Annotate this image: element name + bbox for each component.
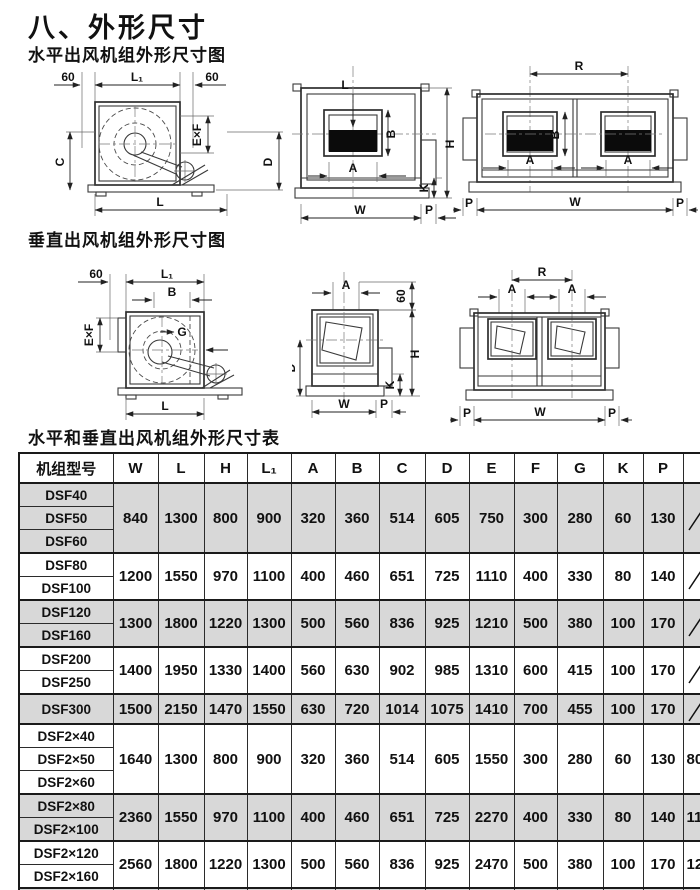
value-cell: 1220: [204, 600, 247, 647]
value-cell: 800: [683, 724, 700, 794]
value-cell: 836: [379, 600, 425, 647]
value-cell: 1220: [204, 841, 247, 888]
horizontal-double-view-diagram: R B A A W P P: [452, 58, 700, 224]
value-cell: 1300: [247, 600, 291, 647]
value-cell: 2360: [113, 794, 158, 841]
table-header-row: 机组型号WLHL₁ABCDEFGKPR: [19, 453, 700, 483]
value-cell: 280: [557, 483, 603, 553]
dim-label-h: H: [408, 350, 422, 359]
dim-label-60: 60: [89, 267, 103, 281]
value-cell: 2150: [158, 694, 204, 724]
dim-label-a-left: A: [508, 282, 517, 296]
dim-label-d: D: [261, 157, 275, 166]
value-cell: 460: [335, 553, 379, 600]
value-cell: 900: [247, 483, 291, 553]
value-cell: [683, 553, 700, 600]
value-cell: 360: [335, 724, 379, 794]
horizontal-front-view-diagram: L B A H K W P: [284, 58, 470, 232]
value-cell: 500: [514, 600, 557, 647]
value-cell: 1260: [683, 841, 700, 888]
value-cell: 500: [291, 841, 335, 888]
value-cell: 140: [643, 553, 683, 600]
table-row: DSF2×80236015509701100400460651725227040…: [19, 794, 700, 818]
table-row: DSF2×40164013008009003203605146051550300…: [19, 724, 700, 748]
value-cell: 380: [557, 841, 603, 888]
value-cell: 1300: [247, 841, 291, 888]
value-cell: 170: [643, 841, 683, 888]
value-cell: 1800: [158, 841, 204, 888]
table-row: DSF3001500215014701550630720101410751410…: [19, 694, 700, 724]
value-cell: 560: [291, 647, 335, 694]
value-cell: 1330: [204, 647, 247, 694]
column-header: K: [603, 453, 643, 483]
table-row: DSF1201300180012201300500560836925121050…: [19, 600, 700, 624]
value-cell: 1100: [247, 553, 291, 600]
value-cell: 1550: [469, 724, 514, 794]
value-cell: 925: [425, 600, 469, 647]
model-cell: DSF2×80: [19, 794, 113, 818]
value-cell: 300: [514, 724, 557, 794]
value-cell: 140: [643, 794, 683, 841]
dim-label-b: B: [548, 130, 562, 139]
dim-label-l1: L₁: [161, 267, 173, 281]
value-cell: 900: [247, 724, 291, 794]
value-cell: 500: [514, 841, 557, 888]
column-header: P: [643, 453, 683, 483]
dim-label-60-left: 60: [61, 70, 75, 84]
column-header: D: [425, 453, 469, 483]
value-cell: 836: [379, 841, 425, 888]
value-cell: 1500: [113, 694, 158, 724]
slash-mark: [687, 610, 700, 638]
value-cell: 170: [643, 600, 683, 647]
value-cell: 170: [643, 694, 683, 724]
value-cell: 460: [335, 794, 379, 841]
value-cell: 1550: [247, 694, 291, 724]
dim-label-d: D: [292, 363, 298, 372]
value-cell: 320: [291, 483, 335, 553]
column-header: 机组型号: [19, 453, 113, 483]
value-cell: 560: [335, 600, 379, 647]
value-cell: 1550: [158, 553, 204, 600]
slash-mark: [687, 657, 700, 685]
dim-label-w: W: [338, 397, 350, 411]
column-header: W: [113, 453, 158, 483]
value-cell: 400: [514, 794, 557, 841]
model-cell: DSF2×120: [19, 841, 113, 865]
value-cell: 605: [425, 724, 469, 794]
dim-label-a-right: A: [568, 282, 577, 296]
model-cell: DSF200: [19, 647, 113, 671]
value-cell: 1100: [247, 794, 291, 841]
dim-label-a: A: [342, 278, 351, 292]
model-cell: DSF160: [19, 624, 113, 648]
dim-label-k: K: [383, 380, 397, 389]
model-cell: DSF40: [19, 483, 113, 507]
value-cell: 100: [603, 841, 643, 888]
value-cell: 320: [291, 724, 335, 794]
value-cell: 651: [379, 794, 425, 841]
model-cell: DSF120: [19, 600, 113, 624]
value-cell: 720: [335, 694, 379, 724]
model-cell: DSF250: [19, 671, 113, 695]
model-cell: DSF50: [19, 507, 113, 530]
model-cell: DSF2×100: [19, 818, 113, 842]
value-cell: 1950: [158, 647, 204, 694]
value-cell: 400: [514, 553, 557, 600]
column-header: H: [204, 453, 247, 483]
dim-label-p: P: [425, 203, 433, 217]
value-cell: 750: [469, 483, 514, 553]
slash-mark: [687, 695, 700, 723]
dimensions-table: 机组型号WLHL₁ABCDEFGKPR DSF40840130080090032…: [18, 452, 700, 890]
dim-label-a-left: A: [526, 153, 535, 167]
dim-label-w: W: [354, 203, 366, 217]
dim-label-l: L: [156, 195, 163, 209]
value-cell: 1800: [158, 600, 204, 647]
value-cell: 1110: [469, 553, 514, 600]
value-cell: 800: [204, 483, 247, 553]
table-row: DSF2×12025601800122013005005608369252470…: [19, 841, 700, 865]
value-cell: 1014: [379, 694, 425, 724]
value-cell: 1200: [113, 553, 158, 600]
dim-label-exf: E×F: [82, 324, 96, 346]
dim-label-a: A: [349, 161, 358, 175]
dim-label-l-top: L: [341, 78, 348, 92]
value-cell: 970: [204, 553, 247, 600]
value-cell: 330: [557, 794, 603, 841]
column-header: A: [291, 453, 335, 483]
value-cell: 514: [379, 724, 425, 794]
dim-label-r: R: [538, 265, 547, 279]
dim-label-p-right: P: [608, 406, 616, 420]
value-cell: 700: [514, 694, 557, 724]
value-cell: 630: [335, 647, 379, 694]
value-cell: 925: [425, 841, 469, 888]
value-cell: 400: [291, 553, 335, 600]
value-cell: 514: [379, 483, 425, 553]
slash-mark: [687, 563, 700, 591]
dim-label-p-left: P: [465, 196, 473, 210]
dim-label-60-right: 60: [205, 70, 219, 84]
value-cell: 1410: [469, 694, 514, 724]
value-cell: 1300: [158, 483, 204, 553]
value-cell: 2270: [469, 794, 514, 841]
value-cell: 100: [603, 694, 643, 724]
value-cell: 1550: [158, 794, 204, 841]
dimensions-table-wrapper: 机组型号WLHL₁ABCDEFGKPR DSF40840130080090032…: [18, 452, 700, 890]
column-header: L: [158, 453, 204, 483]
value-cell: 1300: [158, 724, 204, 794]
value-cell: 300: [514, 483, 557, 553]
column-header: E: [469, 453, 514, 483]
value-cell: 1400: [247, 647, 291, 694]
dim-label-w: W: [534, 405, 546, 419]
dim-label-c: C: [53, 157, 67, 166]
value-cell: 1400: [113, 647, 158, 694]
dim-label-b: B: [168, 285, 177, 299]
value-cell: 360: [335, 483, 379, 553]
dim-label-g: G: [177, 325, 186, 339]
vertical-side-view-diagram: 60 L₁ B E×F G L: [22, 254, 290, 432]
value-cell: 280: [557, 724, 603, 794]
dim-label-exf: E×F: [190, 124, 204, 146]
value-cell: 902: [379, 647, 425, 694]
value-cell: 1160: [683, 794, 700, 841]
value-cell: 500: [291, 600, 335, 647]
value-cell: 80: [603, 794, 643, 841]
dim-label-60: 60: [394, 289, 408, 303]
dim-label-p-left: P: [463, 406, 471, 420]
value-cell: 400: [291, 794, 335, 841]
value-cell: 605: [425, 483, 469, 553]
dim-label-a-right: A: [624, 153, 633, 167]
model-cell: DSF100: [19, 577, 113, 601]
table-title: 水平和垂直出风机组外形尺寸表: [28, 424, 280, 449]
vertical-front-view-diagram: A 60 D H K W P: [292, 256, 467, 436]
value-cell: 60: [603, 724, 643, 794]
value-cell: 2470: [469, 841, 514, 888]
value-cell: 1640: [113, 724, 158, 794]
table-row: DSF2001400195013301400560630902985131060…: [19, 647, 700, 671]
value-cell: 1470: [204, 694, 247, 724]
value-cell: 1075: [425, 694, 469, 724]
value-cell: 100: [603, 600, 643, 647]
model-cell: DSF2×60: [19, 771, 113, 795]
section-vertical-title: 垂直出风机组外形尺寸图: [28, 226, 226, 251]
value-cell: 415: [557, 647, 603, 694]
dim-label-k: K: [417, 183, 431, 192]
value-cell: 130: [643, 724, 683, 794]
model-cell: DSF60: [19, 530, 113, 554]
value-cell: 100: [603, 647, 643, 694]
value-cell: [683, 694, 700, 724]
value-cell: 630: [291, 694, 335, 724]
model-cell: DSF80: [19, 553, 113, 577]
dim-label-p-right: P: [676, 196, 684, 210]
column-header: C: [379, 453, 425, 483]
value-cell: 330: [557, 553, 603, 600]
model-cell: DSF2×40: [19, 724, 113, 748]
value-cell: 600: [514, 647, 557, 694]
column-header: B: [335, 453, 379, 483]
value-cell: 1310: [469, 647, 514, 694]
model-cell: DSF300: [19, 694, 113, 724]
column-header: G: [557, 453, 603, 483]
value-cell: 560: [335, 841, 379, 888]
dim-label-b: B: [384, 129, 398, 138]
dim-label-p: P: [380, 397, 388, 411]
dim-label-r: R: [575, 59, 584, 73]
value-cell: 130: [643, 483, 683, 553]
model-cell: DSF2×50: [19, 748, 113, 771]
value-cell: 60: [603, 483, 643, 553]
value-cell: 651: [379, 553, 425, 600]
column-header: F: [514, 453, 557, 483]
value-cell: 380: [557, 600, 603, 647]
slash-mark: [687, 504, 700, 532]
value-cell: 840: [113, 483, 158, 553]
table-row: DSF8012001550970110040046065172511104003…: [19, 553, 700, 577]
vertical-double-view-diagram: R A A W P P: [450, 256, 665, 438]
value-cell: 725: [425, 794, 469, 841]
horizontal-side-view-diagram: 60 L₁ 60 C E×F D L: [22, 58, 284, 228]
value-cell: [683, 483, 700, 553]
model-cell: DSF2×160: [19, 865, 113, 889]
value-cell: 725: [425, 553, 469, 600]
dim-label-l1: L₁: [131, 70, 143, 84]
column-header: R: [683, 453, 700, 483]
value-cell: 80: [603, 553, 643, 600]
dim-label-w: W: [569, 195, 581, 209]
column-header: L₁: [247, 453, 291, 483]
dim-label-l: L: [161, 399, 168, 413]
value-cell: 2560: [113, 841, 158, 888]
value-cell: 985: [425, 647, 469, 694]
value-cell: 1300: [113, 600, 158, 647]
value-cell: 1210: [469, 600, 514, 647]
page-title: 八、外形尺寸: [28, 6, 208, 45]
value-cell: 170: [643, 647, 683, 694]
value-cell: 970: [204, 794, 247, 841]
value-cell: 800: [204, 724, 247, 794]
value-cell: [683, 647, 700, 694]
value-cell: [683, 600, 700, 647]
table-row: DSF4084013008009003203605146057503002806…: [19, 483, 700, 507]
value-cell: 455: [557, 694, 603, 724]
